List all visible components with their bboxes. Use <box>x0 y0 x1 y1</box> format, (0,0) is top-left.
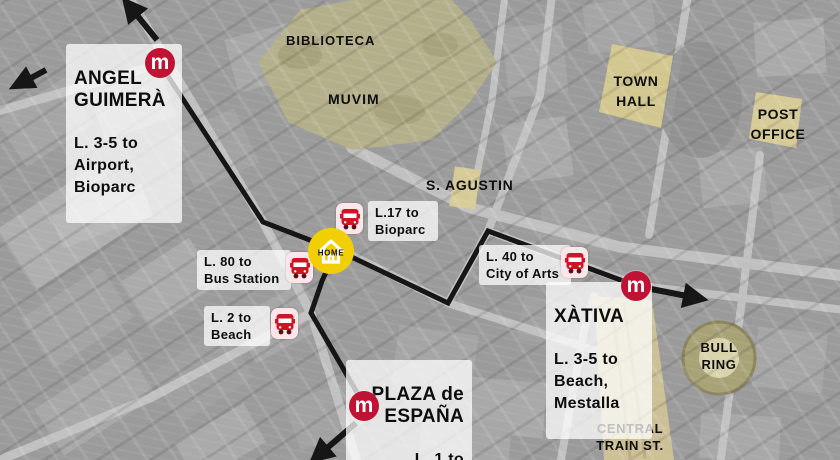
bus-glyph <box>290 256 310 280</box>
station-route-angel-guimera: L. 3-5 to Airport, Bioparc <box>74 133 174 199</box>
landmark-label-bull-ring: BULL RING <box>689 339 749 373</box>
bus-label-l40: L. 40 to City of Arts <box>479 245 571 285</box>
metro-icon-plaza-de-espana[interactable]: m <box>349 391 379 421</box>
landmark-label-muvim: MUVIM <box>328 91 380 109</box>
metro-letter: m <box>627 275 646 296</box>
station-name-xativa: XÀTIVA <box>554 306 644 328</box>
bus-icon-l40[interactable] <box>561 247 588 278</box>
home-label: HOME <box>318 248 344 257</box>
bus-label-l80: L. 80 to Bus Station <box>197 250 291 290</box>
bus-glyph <box>340 207 360 231</box>
station-route-plaza-de-espana: L. 1 to J.S. Train St. <box>354 449 464 460</box>
bus-label-l2: L. 2 to Beach <box>204 306 270 346</box>
bus-glyph <box>565 251 585 275</box>
station-route-xativa: L. 3-5 to Beach, Mestalla <box>554 349 644 415</box>
landmark-label-town-hall: TOWN HALL <box>600 71 672 111</box>
bus-glyph <box>275 312 295 336</box>
metro-letter: m <box>151 52 170 73</box>
hotel-location-map: BIBLIOTECA MUVIM S. AGUSTIN TOWN HALL PO… <box>0 0 840 460</box>
bus-icon-l2[interactable] <box>271 308 298 339</box>
landmark-label-s-agustin: S. AGUSTIN <box>426 177 514 195</box>
bus-label-l17: L.17 to Bioparc <box>368 201 438 241</box>
station-callout-xativa: XÀTIVA L. 3-5 to Beach, Mestalla <box>546 282 652 439</box>
landmark-label-biblioteca: BIBLIOTECA <box>286 33 375 49</box>
metro-icon-angel-guimera[interactable]: m <box>145 48 175 78</box>
metro-letter: m <box>355 395 374 416</box>
landmark-label-post-office: POST OFFICE <box>741 104 815 144</box>
home-marker[interactable]: HOME <box>308 228 354 274</box>
metro-icon-xativa[interactable]: m <box>621 271 651 301</box>
